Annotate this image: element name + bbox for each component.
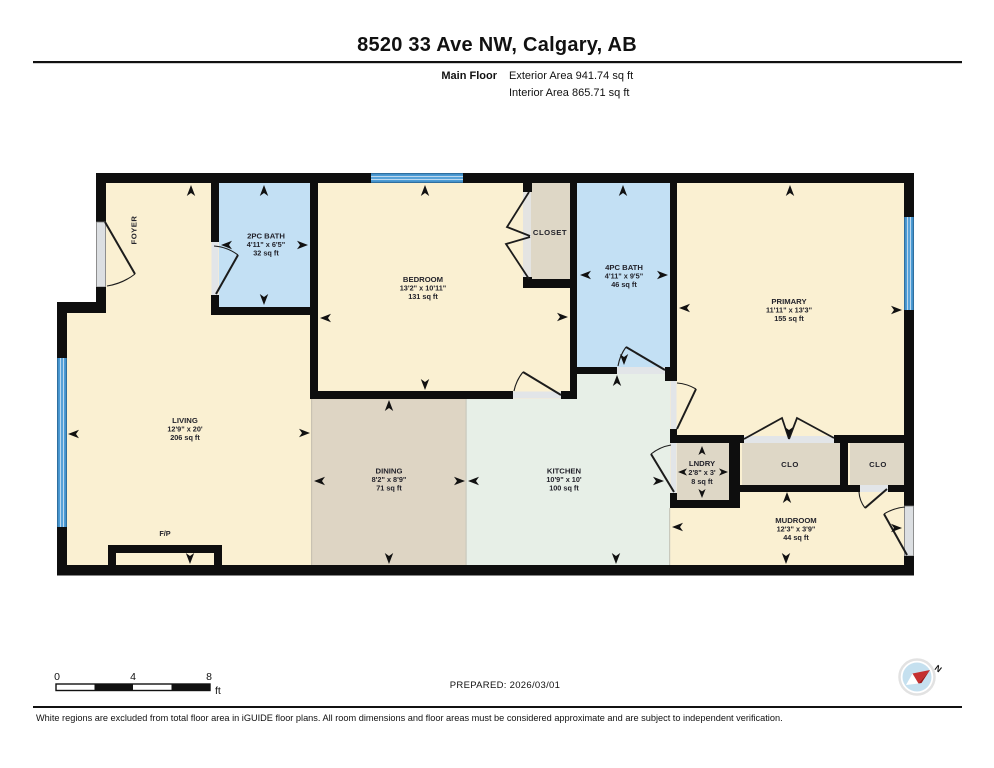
svg-text:White regions are excluded fro: White regions are excluded from total fl… [36, 713, 783, 723]
svg-text:44 sq ft: 44 sq ft [783, 533, 809, 542]
svg-text:8: 8 [206, 671, 212, 683]
svg-text:0: 0 [54, 671, 60, 683]
svg-text:46 sq ft: 46 sq ft [611, 280, 637, 289]
svg-text:Interior Area 865.71 sq ft: Interior Area 865.71 sq ft [509, 87, 629, 99]
svg-text:71 sq ft: 71 sq ft [376, 484, 402, 493]
svg-text:206 sq ft: 206 sq ft [170, 433, 200, 442]
svg-text:8 sq ft: 8 sq ft [691, 477, 713, 486]
svg-text:CLO: CLO [869, 460, 887, 469]
svg-text:8520 33 Ave NW, Calgary, AB: 8520 33 Ave NW, Calgary, AB [357, 34, 637, 56]
svg-text:LNDRY: LNDRY [689, 459, 715, 468]
svg-text:100 sq ft: 100 sq ft [549, 484, 579, 493]
svg-text:155 sq ft: 155 sq ft [774, 314, 804, 323]
svg-text:32 sq ft: 32 sq ft [253, 249, 279, 258]
svg-text:4: 4 [130, 671, 136, 683]
svg-text:CLOSET: CLOSET [533, 228, 567, 237]
svg-text:Exterior Area 941.74 sq ft: Exterior Area 941.74 sq ft [509, 70, 633, 82]
svg-text:PREPARED: 2026/03/01: PREPARED: 2026/03/01 [450, 680, 560, 691]
svg-text:2'8" x 3': 2'8" x 3' [688, 468, 715, 477]
svg-text:131 sq ft: 131 sq ft [408, 292, 438, 301]
svg-text:CLO: CLO [781, 460, 799, 469]
svg-text:ft: ft [215, 685, 221, 697]
svg-text:F/P: F/P [159, 529, 170, 538]
svg-text:FOYER: FOYER [130, 216, 139, 245]
svg-text:Main Floor: Main Floor [441, 70, 497, 82]
